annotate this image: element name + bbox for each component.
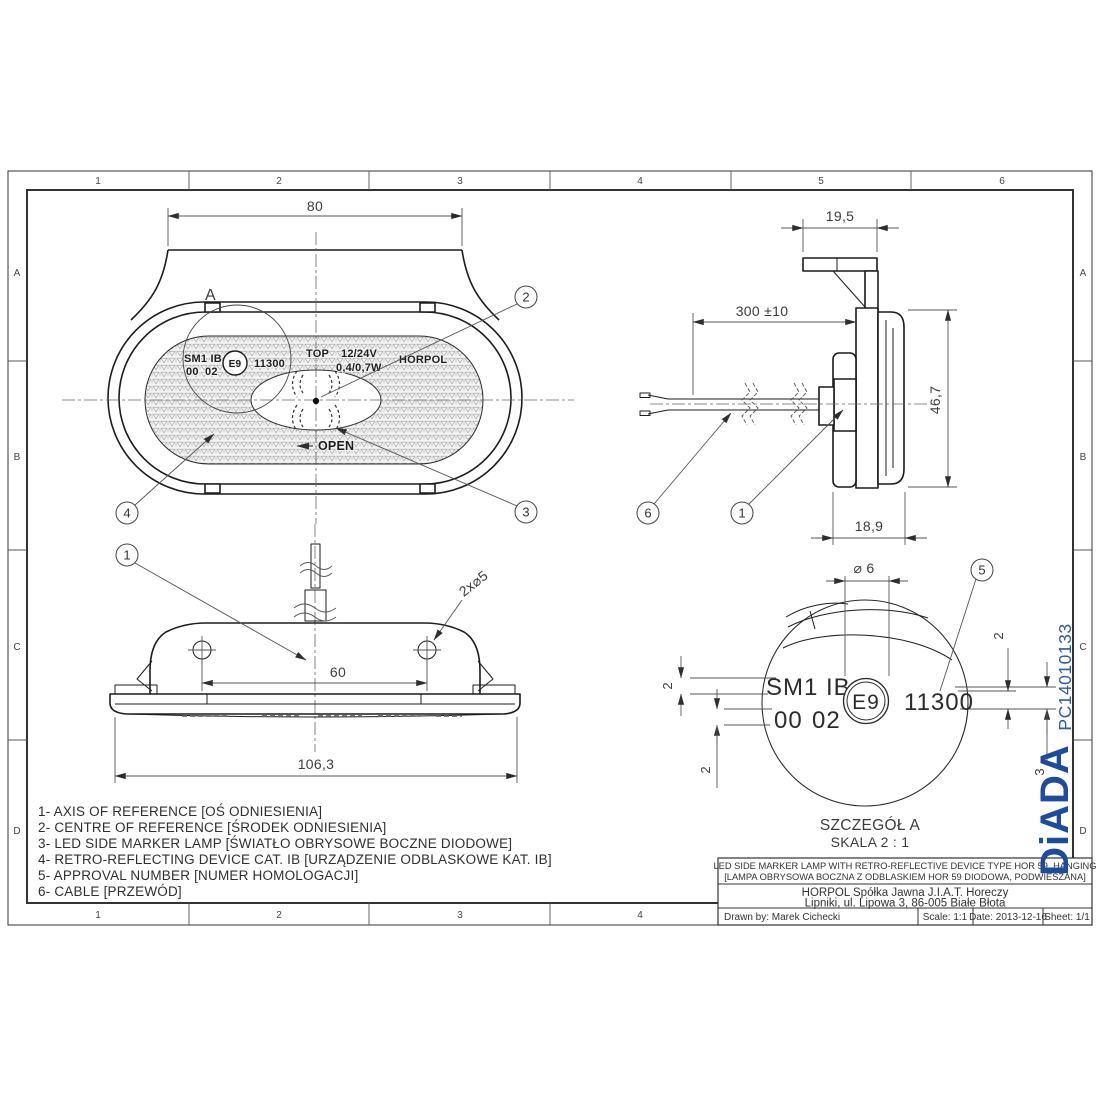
zone-col-label: 3 [457, 176, 463, 187]
zone-row-label: C [13, 642, 20, 653]
company-address: Lipniki, ul. Lipowa 3, 86-005 Białe Błot… [805, 898, 1006, 910]
face-brand: HORPOL [399, 354, 447, 366]
centre-of-reference-dot [313, 398, 319, 404]
zone-row-label: B [14, 452, 21, 463]
dim-106-3-label: 106,3 [298, 756, 335, 772]
zone-col-label: 4 [637, 176, 643, 187]
date-field: Date: 2013-12-16 [969, 912, 1047, 923]
legend-item-4: 4- RETRO-REFLECTING DEVICE CAT. IB [URZĄ… [38, 852, 552, 867]
dim-80-label: 80 [307, 198, 323, 214]
face-top: TOP [306, 348, 329, 360]
bracket-brace [833, 271, 865, 307]
dimension-300: 300 ±10 [693, 303, 856, 395]
dim-60-label: 60 [330, 664, 346, 680]
zone-col-label: 2 [276, 176, 282, 187]
legend-item-2: 2- CENTRE OF REFERENCE [ŚRODEK ODNIESIEN… [38, 820, 386, 835]
zone-col-label: 1 [95, 910, 101, 921]
dimension-19-5: 19,5 [781, 208, 899, 252]
detail-a-mark: A [205, 287, 216, 304]
svg-text:4: 4 [123, 506, 130, 521]
face-emark: E9 [229, 359, 242, 370]
dimension-80: 80 [168, 198, 462, 246]
technical-drawing: 1 2 3 4 5 6 1 2 3 4 A B C D A B C D 80 [0, 0, 1100, 1100]
zone-col-label: 2 [276, 910, 282, 921]
face-power: 0,4/0,7W [336, 362, 382, 374]
zone-row-label: D [13, 826, 20, 837]
part-code-vertical: PC14010133 [1055, 623, 1075, 730]
lens-profile-side [878, 312, 904, 484]
cable-connector [834, 379, 856, 431]
dim-300-label: 300 ±10 [736, 303, 789, 319]
drawing-sheet: 1 2 3 4 5 6 1 2 3 4 A B C D A B C D 80 [0, 0, 1100, 1100]
dimension-46-7: 46,7 [908, 310, 957, 487]
svg-text:1: 1 [738, 506, 745, 521]
dim-2c-label: 2 [991, 632, 1006, 639]
dim-19-5-label: 19,5 [826, 208, 854, 224]
face-open: OPEN [318, 439, 354, 453]
detail-approval: 11300 [904, 689, 974, 716]
drawing-title-pl: [LAMPA OBRYSOWA BOCZNA Z ODBLASKIEM HOR … [724, 872, 1086, 882]
balloon-1-bottom: 1 [116, 544, 306, 660]
legend-item-3: 3- LED SIDE MARKER LAMP [ŚWIATŁO OBRYSOW… [38, 836, 512, 851]
face-code-02: 02 [205, 366, 218, 378]
balloon-1-side: 1 [731, 410, 843, 524]
diada-logo: DiADA [1033, 744, 1077, 876]
legend-item-5: 5- APPROVAL NUMBER [NUMER HOMOLOGACJI] [38, 868, 358, 883]
svg-text:6: 6 [644, 506, 651, 521]
detail-title: SZCZEGÓŁ A [820, 817, 921, 834]
dim-dia6-label: ⌀ 6 [853, 560, 874, 576]
zone-row-label: A [14, 268, 21, 279]
dim-2a-label: 2 [660, 682, 675, 689]
mounting-holes [188, 636, 441, 664]
detail-scale: SKALA 2 : 1 [831, 834, 910, 850]
legend-item-6: 6- CABLE [PRZEWÓD] [38, 884, 182, 899]
face-approval-number: 11300 [254, 358, 285, 370]
zone-col-label: 3 [457, 910, 463, 921]
cable-gland [819, 387, 834, 425]
bracket-plate [803, 258, 877, 271]
dimension-2x5: 2x⌀5 [434, 567, 491, 640]
dimension-18-9: 18,9 [811, 492, 927, 545]
svg-text:3: 3 [522, 505, 529, 520]
legend-item-1: 1- AXIS OF REFERENCE [OŚ ODNIESIENIA] [38, 804, 322, 819]
detail-view: SM1 IB 00 02 E9 11300 ⌀ 6 2 2 2 [660, 559, 1056, 850]
zone-col-label: 1 [95, 176, 101, 187]
detail-code-00: 00 [774, 707, 803, 734]
zone-row-label: B [1080, 452, 1087, 463]
front-view: 80 SM1 IB 00 02 E9 11300 [62, 198, 574, 524]
zone-row-label: D [1079, 826, 1086, 837]
detail-emark: E9 [852, 691, 880, 714]
dim-2b-label: 2 [698, 766, 713, 773]
dim-18-9-label: 18,9 [855, 518, 883, 534]
sheet-field: Sheet: 1/1 [1044, 912, 1090, 923]
detail-code-02: 02 [812, 707, 841, 734]
scale-field: Scale: 1:1 [923, 912, 968, 923]
dimension-106-3: 106,3 [115, 717, 517, 783]
zone-row-label: C [1079, 642, 1086, 653]
balloon-6: 6 [637, 413, 731, 524]
lamp-base-plate-side [856, 308, 878, 488]
dimension-2a: 2 [660, 656, 681, 716]
svg-text:2: 2 [522, 290, 529, 305]
bracket-wall [865, 271, 878, 311]
legend: 1- AXIS OF REFERENCE [OŚ ODNIESIENIA] 2-… [38, 804, 552, 899]
detail-model: SM1 IB [766, 674, 851, 701]
face-model: SM1 IB [184, 353, 222, 365]
bottom-view: 60 106,3 2x⌀5 1 [110, 524, 520, 783]
dimension-60: 60 [202, 661, 427, 691]
zone-row-label: A [1080, 268, 1087, 279]
dimension-2b: 2 [698, 689, 717, 788]
face-voltage: 12/24V [341, 348, 378, 360]
dimension-2c: 2 [991, 632, 1008, 729]
zone-col-label: 6 [999, 176, 1005, 187]
zone-col-label: 4 [637, 910, 643, 921]
svg-text:5: 5 [978, 563, 985, 578]
drawn-by: Drawn by: Marek Cichecki [724, 912, 840, 923]
side-view: 19,5 300 ±10 [637, 208, 957, 545]
zone-col-label: 5 [818, 176, 824, 187]
face-code-00: 00 [186, 366, 199, 378]
dim-2x5-label: 2x⌀5 [456, 567, 491, 599]
svg-text:1: 1 [123, 548, 130, 563]
dim-46-7-label: 46,7 [927, 386, 943, 414]
